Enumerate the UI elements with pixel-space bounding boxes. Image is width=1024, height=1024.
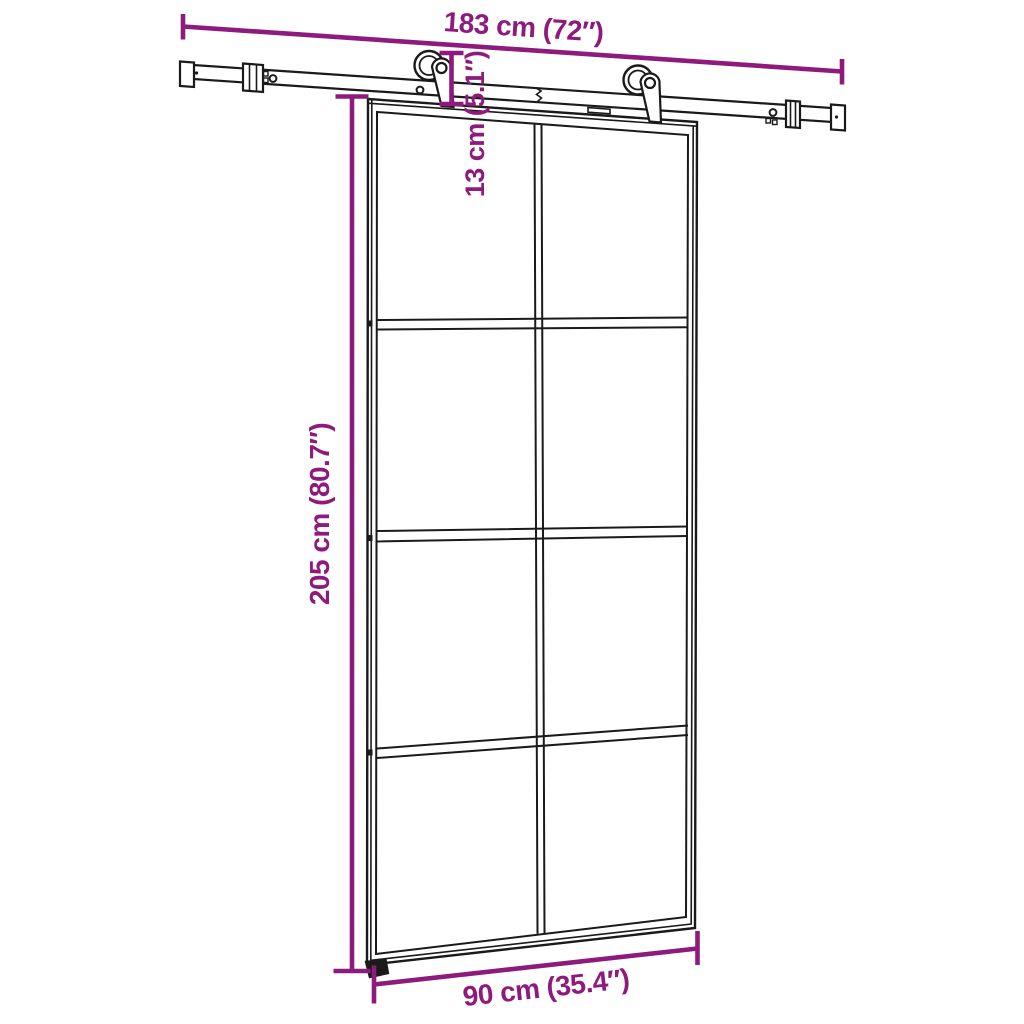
diagram-canvas: 183 cm (72″) 13 cm (5.1″) 205 cm (80.7″)… <box>0 0 1024 1024</box>
track-length-label: 183 cm (72″) <box>443 6 605 48</box>
track-end-cap-left <box>180 62 194 88</box>
mullion-joint-block <box>367 321 373 327</box>
axle-bolt <box>645 78 655 88</box>
anti-jump-block <box>588 108 610 114</box>
product-dimension-diagram: 183 cm (72″) 13 cm (5.1″) 205 cm (80.7″)… <box>0 0 1024 1024</box>
door-height-label: 205 cm (80.7″) <box>304 423 335 605</box>
door-frame-outer <box>367 99 697 965</box>
sliding-glass-door <box>366 99 698 978</box>
roller-hanger-left <box>415 51 454 107</box>
dimension-line-door-height <box>334 97 371 972</box>
bracket-screw <box>773 120 778 125</box>
bracket-screw <box>766 119 771 124</box>
mullion-joint-block <box>367 750 373 756</box>
floor-guide <box>366 960 389 978</box>
end-cap-screw <box>835 115 838 118</box>
mullion-joint-block <box>367 535 373 541</box>
hanger-drop-label: 13 cm (5.1″) <box>460 51 490 198</box>
axle-bolt <box>437 63 447 73</box>
end-cap-screw <box>195 71 198 74</box>
track-hole <box>270 75 277 82</box>
wall-bracket-left <box>243 64 268 93</box>
track-hole <box>417 87 424 94</box>
track-hole <box>770 109 777 116</box>
